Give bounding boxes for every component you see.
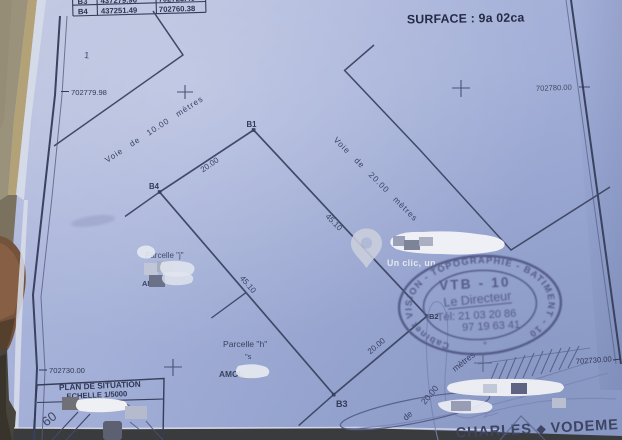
svg-text:702779.98: 702779.98 [71,88,107,97]
svg-text:1: 1 [84,50,90,60]
svg-text:702780.00: 702780.00 [536,83,572,93]
svg-text:CHARLES: CHARLES [455,422,532,440]
svg-text:Parcelle "h": Parcelle "h" [223,339,267,349]
svg-text:B1: B1 [247,120,258,129]
svg-text:B3: B3 [336,399,348,409]
svg-text:B4: B4 [78,7,89,16]
svg-text:SURFACE : 9a 02ca: SURFACE : 9a 02ca [407,10,525,26]
svg-text:702760.38: 702760.38 [159,4,196,14]
svg-text:702730.00: 702730.00 [49,366,85,375]
svg-text:◆: ◆ [535,423,547,436]
svg-text:"s: "s [245,352,252,361]
svg-text:Un clic, un…: Un clic, un… [387,258,445,268]
svg-text:B3: B3 [77,0,87,6]
svg-text:B4: B4 [149,182,160,191]
svg-text:437251.49: 437251.49 [101,6,138,16]
